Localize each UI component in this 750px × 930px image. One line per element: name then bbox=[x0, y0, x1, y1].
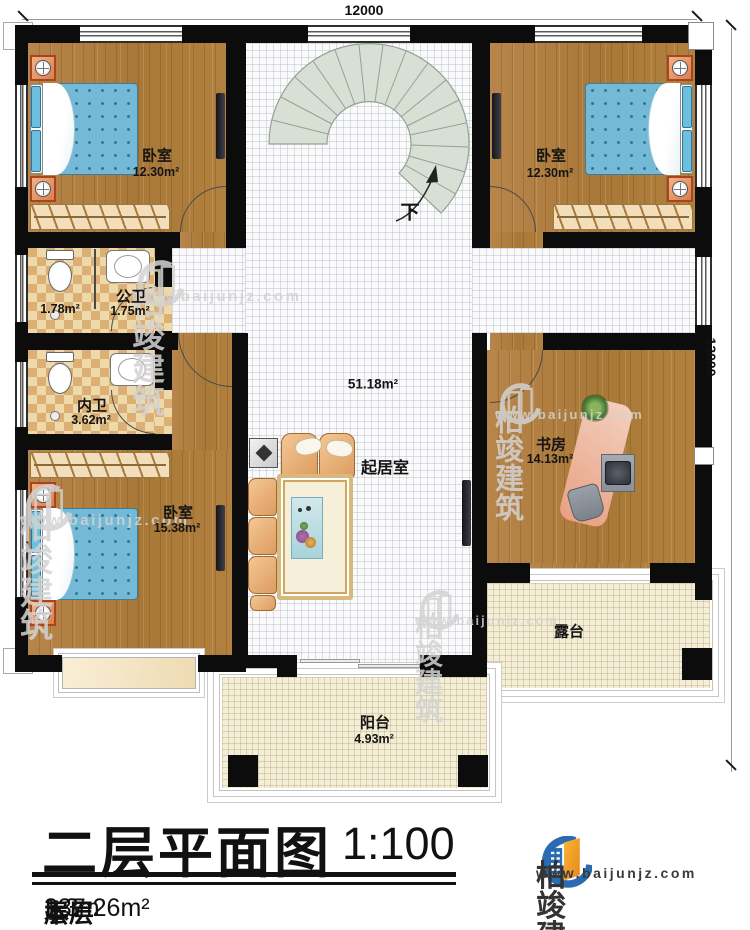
table-decor-dot bbox=[306, 506, 311, 511]
bed-cushion bbox=[682, 130, 692, 172]
watermark-title: 柏竣建筑 bbox=[20, 510, 60, 642]
watermark-url: www.baijunjz.com bbox=[415, 615, 559, 628]
lamp-icon bbox=[35, 60, 51, 76]
wall-under-bedroom2-a bbox=[472, 232, 490, 248]
tv bbox=[492, 93, 501, 159]
terrace-door-threshold bbox=[530, 563, 650, 583]
wardrobe bbox=[553, 204, 693, 230]
balcony-sliding-door-leaf-2 bbox=[358, 664, 420, 668]
table-flowers bbox=[300, 522, 308, 530]
dim-corner-box-top-right bbox=[688, 22, 714, 50]
sofa-seat bbox=[248, 517, 277, 555]
wall-living-bottom-corner bbox=[277, 655, 297, 677]
dim-tick-top-right bbox=[691, 10, 702, 21]
wall-right-2 bbox=[695, 187, 712, 257]
watermark-title: 柏竣建筑 bbox=[495, 406, 530, 522]
balcony-pillar-left bbox=[228, 755, 258, 787]
nightstand bbox=[30, 55, 56, 81]
bedroom-top-right-threshold bbox=[490, 232, 543, 248]
room-label-terrace: 露台 bbox=[554, 621, 584, 642]
tv bbox=[216, 93, 225, 159]
balcony-pillar-right bbox=[458, 755, 488, 787]
lamp-icon bbox=[672, 181, 688, 197]
wall-bedroom3-east bbox=[232, 333, 248, 655]
stair-down-label: 下 bbox=[400, 198, 419, 225]
room-label-bedroom-top-right: 卧室 bbox=[536, 145, 566, 166]
wall-study-bottom-b bbox=[650, 563, 712, 583]
floor-height-value: 3.3m bbox=[44, 894, 100, 923]
title-underline-thick bbox=[32, 872, 456, 877]
floor-drain bbox=[50, 411, 60, 421]
room-area-public-bath: 1.75m² bbox=[110, 304, 150, 318]
corridor-right-floor bbox=[472, 248, 695, 333]
bedroom-top-left-threshold bbox=[180, 232, 226, 248]
tv bbox=[216, 505, 225, 571]
nightstand bbox=[667, 55, 693, 81]
dim-height-label: 13000 bbox=[703, 338, 719, 377]
wall-top-1 bbox=[15, 25, 80, 43]
bed-cushion bbox=[31, 86, 41, 128]
room-label-balcony: 阳台 bbox=[360, 712, 390, 733]
room-area-balcony: 4.93m² bbox=[354, 732, 394, 746]
bay-window-sill bbox=[62, 657, 196, 689]
wall-living-study bbox=[472, 333, 487, 655]
dim-tick-top-left bbox=[17, 10, 28, 21]
toilet bbox=[46, 250, 74, 260]
wall-top-3 bbox=[410, 25, 535, 43]
room-label-bedroom-bottom-left: 卧室 bbox=[163, 502, 193, 523]
tv bbox=[462, 480, 471, 546]
lamp-icon bbox=[35, 181, 51, 197]
dim-line-top bbox=[22, 19, 697, 20]
table-flowers bbox=[305, 537, 316, 548]
wall-bedroom3-bottom-b bbox=[198, 655, 246, 672]
dim-line-right bbox=[731, 28, 732, 772]
wall-under-bedroom2-b bbox=[543, 232, 695, 248]
shower-divider bbox=[94, 249, 96, 309]
window-right-bedroom2 bbox=[695, 85, 712, 187]
wall-bedroom1-stairs bbox=[226, 43, 246, 232]
sofa-seat bbox=[248, 478, 277, 516]
bed-cushion bbox=[31, 130, 41, 172]
dim-width-label: 12000 bbox=[345, 2, 384, 18]
window-left-public-bath bbox=[15, 255, 28, 322]
wall-top-2 bbox=[182, 25, 308, 43]
wall-left-1 bbox=[15, 43, 28, 85]
room-area-shower: 1.78m² bbox=[40, 302, 80, 316]
window-left-bedroom1 bbox=[15, 85, 28, 187]
table-decor-dot bbox=[298, 508, 302, 512]
study-door-threshold bbox=[490, 333, 543, 350]
terrace-pillar bbox=[682, 648, 712, 680]
wall-under-bedroom1-b bbox=[226, 232, 246, 248]
company-url: www.baijunjz.com bbox=[536, 866, 697, 880]
wardrobe bbox=[30, 452, 170, 478]
toilet bbox=[46, 352, 74, 362]
balcony-sliding-door-leaf-1 bbox=[300, 659, 360, 663]
bed-cushion bbox=[682, 86, 692, 128]
nightstand bbox=[30, 176, 56, 202]
wall-bedroom3-bottom-a bbox=[15, 655, 62, 672]
room-area-bedroom-top-right: 12.30m² bbox=[527, 166, 574, 180]
right-wall-niche bbox=[694, 447, 714, 465]
window-top-bedroom-right bbox=[535, 25, 642, 43]
window-top-stairs bbox=[308, 25, 410, 43]
bed-sheet bbox=[648, 83, 680, 175]
window-top-bedroom-left bbox=[80, 25, 182, 43]
room-area-bedroom-top-left: 12.30m² bbox=[133, 165, 180, 179]
window-right-corridor bbox=[695, 257, 712, 325]
room-area-bedroom-bottom-left: 15.38m² bbox=[154, 521, 201, 535]
title-underline-thin bbox=[32, 882, 456, 885]
window-left-private-bath bbox=[15, 362, 28, 427]
wardrobe bbox=[30, 204, 170, 230]
nightstand bbox=[667, 176, 693, 202]
room-area-private-bath: 3.62m² bbox=[71, 413, 111, 427]
wall-under-bedroom1-a bbox=[15, 232, 180, 248]
terrace-floor bbox=[487, 583, 710, 688]
sheet-scale: 1:100 bbox=[342, 818, 455, 870]
sofa-seat bbox=[248, 556, 277, 594]
room-label-bedroom-top-left: 卧室 bbox=[142, 145, 172, 166]
wall-stairs-bedroom2 bbox=[472, 43, 490, 232]
floor-plan-sheet: 12000 13000 下 bbox=[0, 0, 750, 930]
wall-study-bottom-a bbox=[472, 563, 530, 583]
sofa-armrest bbox=[250, 595, 276, 611]
room-label-living: 起居室 bbox=[361, 454, 409, 478]
lamp-icon bbox=[672, 60, 688, 76]
watermark-url: www.baijunjz.com bbox=[132, 289, 301, 304]
wall-under-private-bath bbox=[15, 434, 172, 450]
room-area-living: 51.18m² bbox=[348, 377, 398, 392]
watermark-url: www.baijunjz.com bbox=[495, 409, 644, 422]
computer-monitor bbox=[605, 461, 631, 485]
staircase bbox=[246, 43, 470, 248]
wall-study-top bbox=[543, 333, 695, 350]
watermark-title: 柏竣建筑 bbox=[415, 612, 449, 724]
room-area-study: 14.13m² bbox=[527, 452, 574, 466]
